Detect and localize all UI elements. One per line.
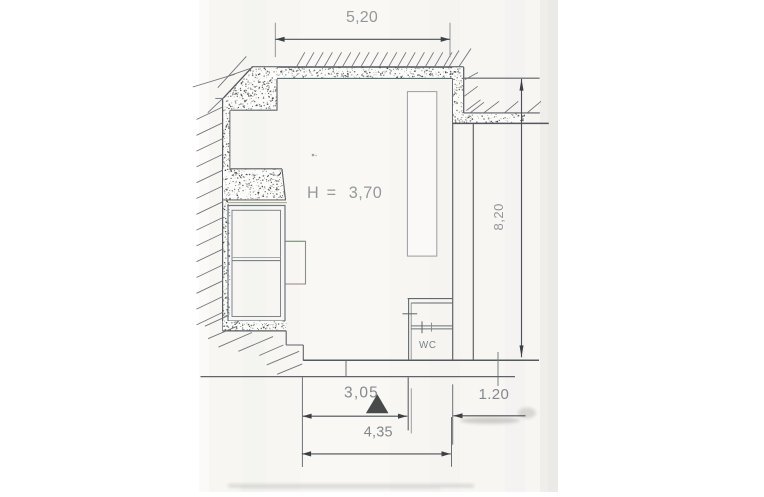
svg-text:H: H [307,184,319,202]
svg-text:3,70: 3,70 [349,184,383,202]
svg-text:8,20: 8,20 [491,203,506,230]
svg-text:=: = [327,184,336,202]
svg-text:3,05: 3,05 [344,384,379,401]
svg-text:1.20: 1.20 [479,386,510,403]
svg-text:WC: WC [419,340,437,351]
svg-text:5,20: 5,20 [346,9,378,26]
svg-text:4,35: 4,35 [364,425,393,441]
